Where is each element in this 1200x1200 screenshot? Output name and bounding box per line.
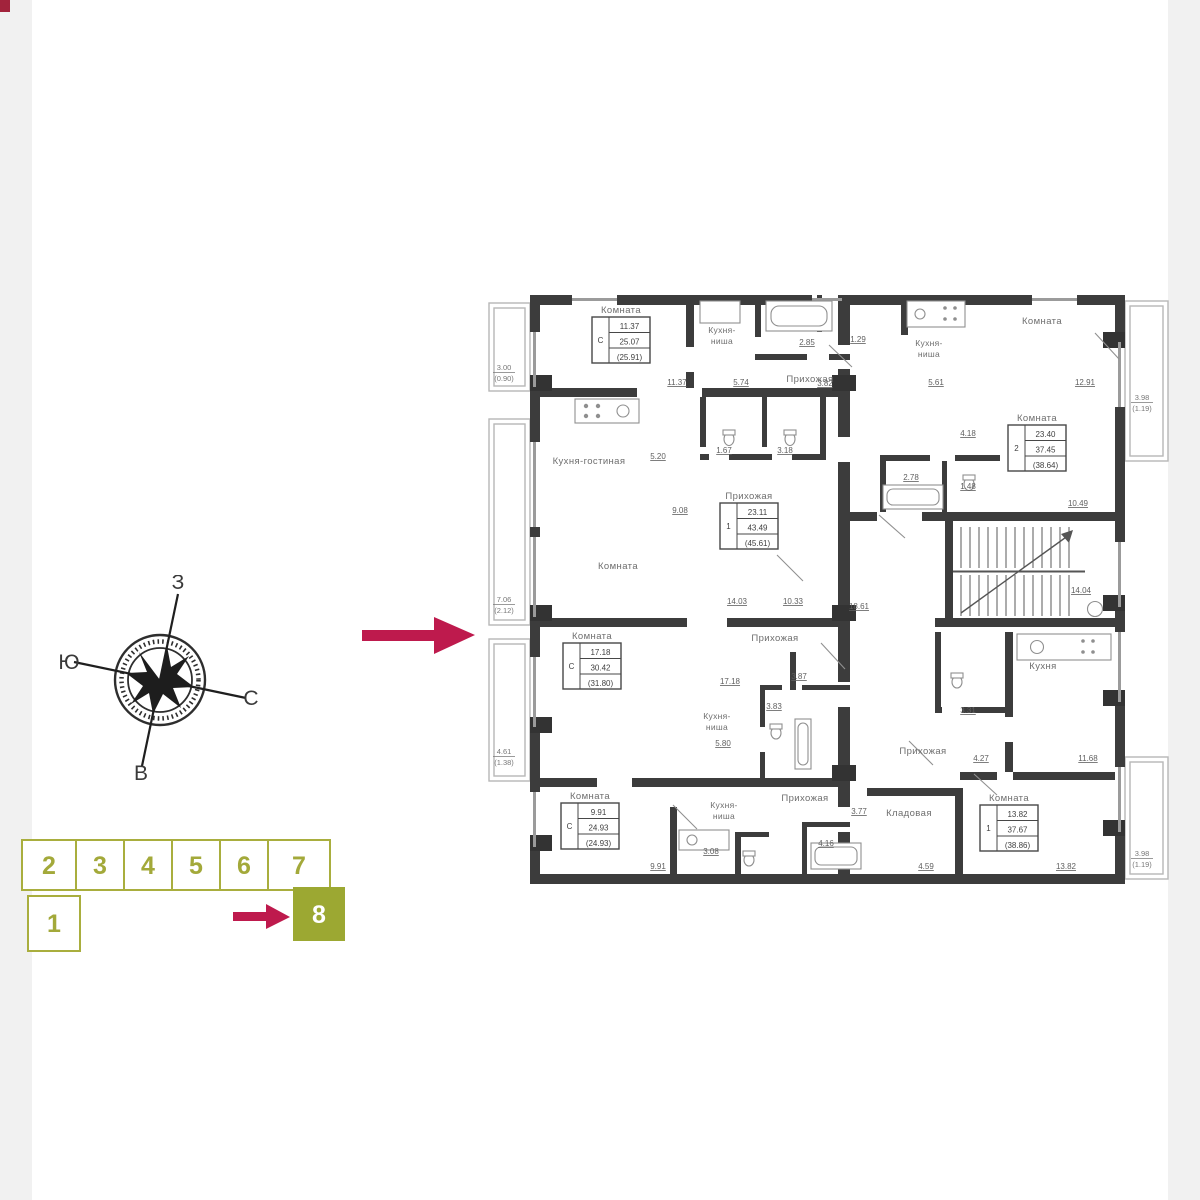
unit-c-stamp-area: 43.49 (747, 524, 768, 533)
unit-f-storage-dim: 4.59 (918, 862, 934, 871)
unit-f-bath-dim: 3.31 (960, 706, 976, 715)
unit-a-kitchen-label-2: ниша (711, 336, 733, 346)
unit-b-kitchen-width-dim: 5.61 (928, 378, 944, 387)
unit-d-stamp: С 17.18 30.42 (31.80) (563, 643, 621, 689)
section-8-label: 8 (312, 901, 326, 929)
unit-a-room-label: Комната (601, 305, 641, 316)
unit-b-stamp: 2 23.40 37.45 (38.64) (1008, 425, 1066, 471)
unit-d-stamp-area: 30.42 (590, 664, 611, 673)
section-2-label: 2 (42, 852, 56, 880)
unit-a-stamp-area: 25.07 (619, 338, 640, 347)
section-3-label: 3 (93, 852, 107, 880)
unit-f-hall-dim: 4.27 (973, 754, 989, 763)
unit-c-wc-dim: 3.18 (777, 446, 793, 455)
unit-d-bath-dim: 3.87 (791, 672, 807, 681)
unit-f-balcony-area: 3.98 (1135, 849, 1150, 858)
unit-b-stamp-rooms: 2 (1014, 444, 1019, 453)
unit-b-balcony-area: 3.98 (1135, 393, 1150, 402)
section-5-label: 5 (189, 852, 203, 880)
unit-e-kitchen-label-2: ниша (713, 811, 735, 821)
unit-f-hall-label: Прихожая (899, 746, 946, 757)
unit-c-room-label: Комната (598, 561, 638, 572)
unit-c-room-width-2-dim: 10.33 (783, 597, 804, 606)
unit-a-bath-dim: 2.85 (799, 338, 815, 347)
unit-b-inner-width-dim: 10.49 (1068, 499, 1089, 508)
unit-f-stamp-total: (38.86) (1005, 841, 1031, 850)
unit-d-balcony-area: 4.61 (497, 747, 512, 756)
unit-d-hall-width-dim: 17.18 (720, 677, 741, 686)
unit-e-room-label: Комната (570, 791, 610, 802)
unit-f-stamp-area: 37.67 (1007, 826, 1028, 835)
unit-f-kitchen-label: Кухня (1029, 661, 1056, 672)
unit-f-balcony-reduced: (1.19) (1132, 860, 1152, 869)
section-1-label: 1 (47, 910, 61, 938)
floorplan: Комната Кухня- ниша 2.85 1.29 Прихожая 3… (477, 287, 1177, 919)
unit-d-balcony-reduced: (1.38) (494, 758, 514, 767)
section-arrow (233, 904, 290, 929)
unit-a-kitchen-label-1: Кухня- (708, 325, 735, 335)
unit-c-bath-dim: 1.67 (716, 446, 732, 455)
core-corridor-dim: 18.61 (849, 602, 870, 611)
unit-d-kitchen-label-2: ниша (706, 722, 728, 732)
corner-mark (0, 0, 10, 12)
pointer-arrow (362, 608, 477, 663)
building-section-map: 2 3 4 5 6 7 1 8 (8, 826, 353, 956)
unit-f-stamp-rooms: 1 (986, 824, 991, 833)
unit-c-stamp: 1 23.11 43.49 (45.61) (720, 503, 778, 549)
compass-label-east: В (134, 762, 148, 785)
unit-d-kitchen-label-1: Кухня- (703, 711, 730, 721)
unit-f-kitchen-width-dim: 11.68 (1078, 754, 1098, 763)
unit-e-kitchen-dim: 3.08 (703, 847, 719, 856)
unit-d-kitchen-dim: 5.80 (715, 739, 731, 748)
unit-b-bath-dim: 2.78 (903, 473, 919, 482)
compass-label-west: З (172, 575, 185, 594)
compass-needles (74, 594, 246, 766)
compass-rose: З Ю С В (55, 575, 265, 785)
core-stairs-dim: 14.04 (1071, 586, 1092, 595)
unit-a-balcony-area: 3.00 (497, 363, 512, 372)
unit-c-stamp-living: 23.11 (748, 508, 768, 517)
unit-c-hall-label: Прихожая (725, 491, 772, 502)
unit-a-kitchen-width-dim: 5.74 (733, 378, 749, 387)
staircase (953, 527, 1085, 616)
unit-e-stamp: С 9.91 24.93 (24.93) (561, 803, 619, 849)
unit-b-hall-dim: 4.18 (960, 429, 976, 438)
unit-e-stamp-area: 24.93 (588, 824, 609, 833)
unit-b-kitchen-label-1: Кухня- (915, 338, 942, 348)
unit-e-hall-label: Прихожая (781, 793, 828, 804)
unit-b-stamp-room-label: Комната (1017, 413, 1057, 424)
unit-d-wc-dim: 3.83 (766, 702, 782, 711)
unit-f-storage-label: Кладовая (886, 808, 932, 819)
unit-c-balcony-reduced: (2.12) (494, 606, 514, 615)
unit-a-room-width-dim: 11.37 (667, 378, 687, 387)
unit-b-balcony-reduced: (1.19) (1132, 404, 1152, 413)
unit-e-bath-dim: 4.16 (818, 839, 834, 848)
unit-e-room-width-dim: 9.91 (650, 862, 666, 871)
unit-e-stamp-total: (24.93) (586, 839, 612, 848)
unit-f-stamp: 1 13.82 37.67 (38.86) (980, 805, 1038, 851)
unit-b-room-width-dim: 12.91 (1075, 378, 1096, 387)
unit-c-stamp-total: (45.61) (745, 539, 771, 548)
unit-d-hall-label: Прихожая (751, 633, 798, 644)
section-4-label: 4 (141, 852, 155, 880)
unit-b-stamp-living: 23.40 (1035, 430, 1056, 439)
unit-c-balcony-area: 7.06 (497, 595, 512, 604)
unit-b-wc-dim: 1.48 (960, 482, 976, 491)
unit-f-room-label: Комната (989, 793, 1029, 804)
compass-label-south: Ю (58, 651, 79, 674)
unit-d-stamp-rooms: С (569, 662, 575, 671)
unit-c-stamp-rooms: 1 (726, 522, 731, 531)
unit-c-hall-width-dim: 9.08 (672, 506, 688, 515)
unit-e-stamp-rooms: С (567, 822, 573, 831)
unit-c-kitchen-dim: 5.20 (650, 452, 666, 461)
unit-a-balcony-reduced: (0.90) (494, 374, 514, 383)
unit-e-kitchen-label-1: Кухня- (710, 800, 737, 810)
unit-e-stamp-living: 9.91 (591, 808, 607, 817)
unit-d-room-label: Комната (572, 631, 612, 642)
unit-c-room-width-1-dim: 14.03 (727, 597, 748, 606)
unit-e-hall-dim: 3.77 (851, 807, 867, 816)
unit-b-stamp-total: (38.64) (1033, 461, 1059, 470)
page-margin-left (0, 0, 32, 1200)
unit-f-stamp-living: 13.82 (1007, 810, 1028, 819)
unit-c-kitchen-living-label: Кухня-гостиная (553, 456, 626, 467)
unit-b-kitchen-label-2: ниша (918, 349, 940, 359)
unit-a-stamp-rooms: С (598, 336, 604, 345)
section-7-label: 7 (292, 852, 306, 880)
unit-a-wc-dim: 1.29 (850, 335, 866, 344)
unit-a-stamp-living: 11.37 (620, 322, 640, 331)
unit-a-hall-dim: 3.82 (817, 379, 833, 388)
section-6-label: 6 (237, 852, 251, 880)
unit-f-room-width-dim: 13.82 (1056, 862, 1077, 871)
unit-b-room-label: Комната (1022, 316, 1062, 327)
unit-d-stamp-living: 17.18 (590, 648, 611, 657)
unit-a-stamp: С 11.37 25.07 (25.91) (592, 317, 650, 363)
unit-a-stamp-total: (25.91) (617, 353, 643, 362)
compass-label-north: С (243, 687, 258, 710)
unit-b-stamp-area: 37.45 (1035, 446, 1056, 455)
doors (673, 333, 1119, 829)
unit-d-stamp-total: (31.80) (588, 679, 614, 688)
